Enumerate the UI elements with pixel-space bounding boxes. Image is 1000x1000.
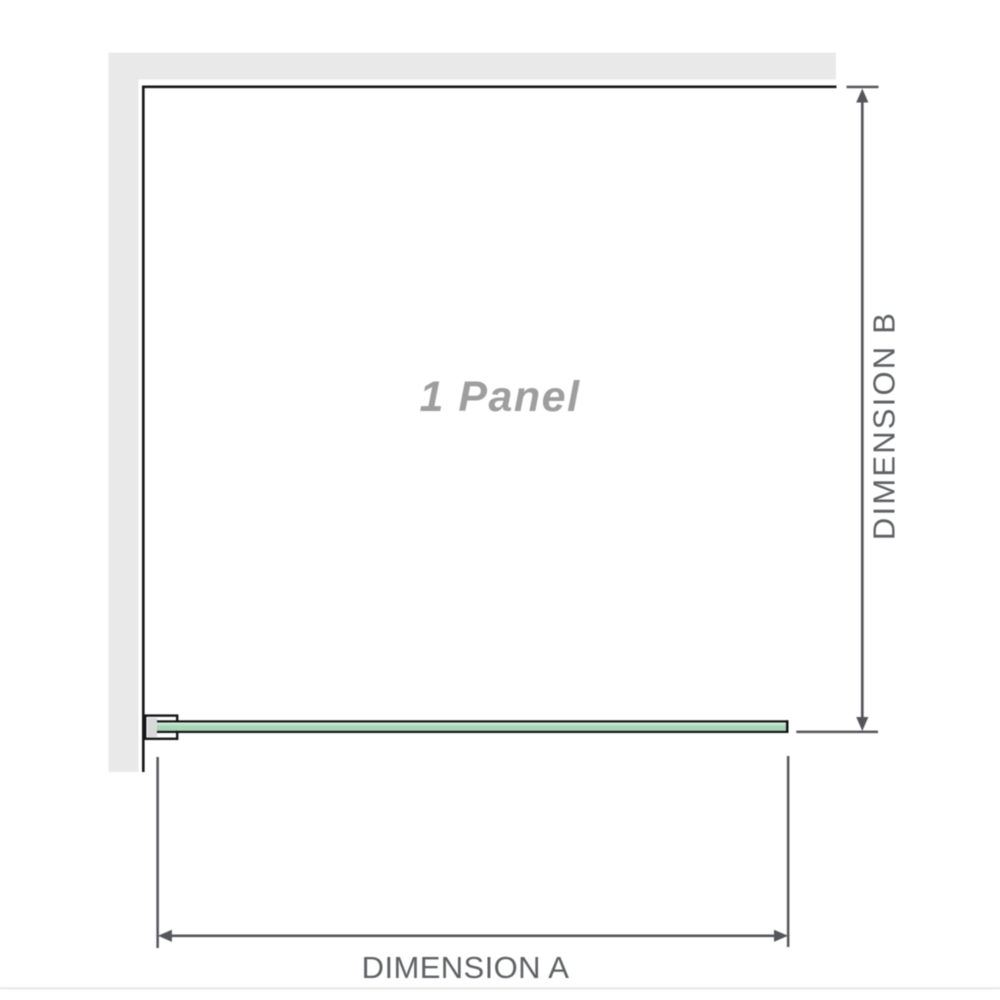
svg-text:DIMENSION B: DIMENSION B [867, 311, 902, 540]
svg-text:DIMENSION A: DIMENSION A [362, 950, 570, 985]
svg-text:1 Panel: 1 Panel [419, 373, 580, 421]
